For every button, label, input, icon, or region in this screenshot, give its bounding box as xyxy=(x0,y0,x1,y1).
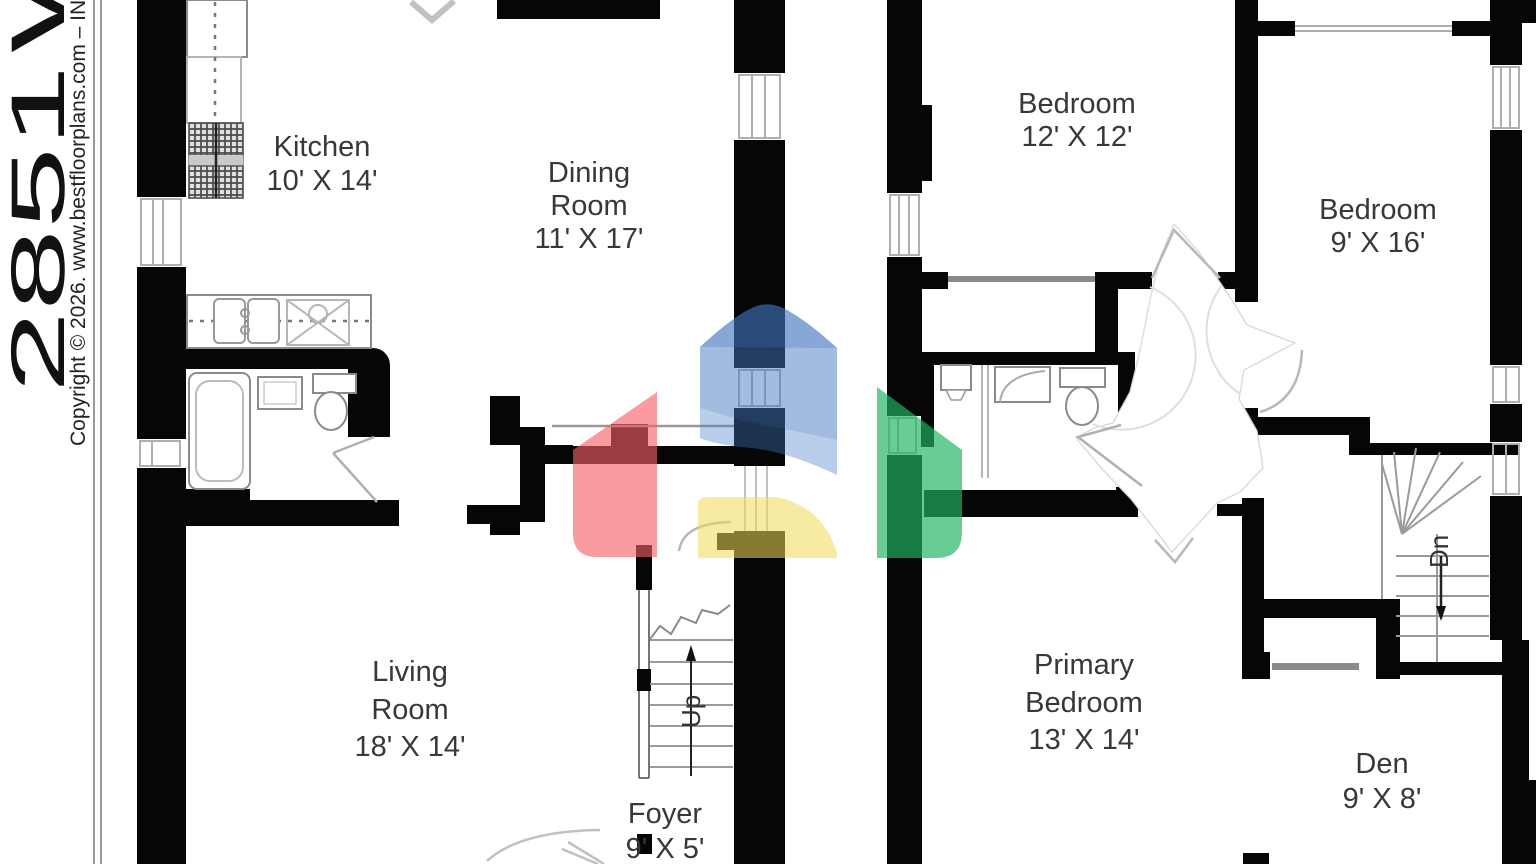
svg-text:12' X 12': 12' X 12' xyxy=(1021,121,1132,153)
svg-text:Foyer: Foyer xyxy=(628,798,702,830)
svg-text:9' X 8': 9' X 8' xyxy=(1343,783,1422,815)
svg-text:18' X 14': 18' X 14' xyxy=(354,731,465,763)
svg-text:10' X 14': 10' X 14' xyxy=(266,165,377,197)
svg-text:Dn: Dn xyxy=(1424,535,1454,568)
svg-text:9' X 5': 9' X 5' xyxy=(626,833,705,864)
svg-text:Up: Up xyxy=(676,695,706,728)
svg-text:Bedroom: Bedroom xyxy=(1025,687,1143,719)
svg-text:Den: Den xyxy=(1355,748,1408,780)
svg-text:Bedroom: Bedroom xyxy=(1319,194,1437,226)
svg-text:Bedroom: Bedroom xyxy=(1018,88,1136,120)
svg-text:Dining: Dining xyxy=(548,157,630,189)
svg-text:Room: Room xyxy=(550,190,627,222)
svg-text:Primary: Primary xyxy=(1034,649,1134,681)
svg-text:13' X 14': 13' X 14' xyxy=(1028,724,1139,756)
svg-text:11' X 17': 11' X 17' xyxy=(535,223,644,255)
svg-text:Copyright © 2026. www.bestflo: Copyright © 2026. www.bestfloorplans.com… xyxy=(67,0,90,446)
svg-text:9' X 16': 9' X 16' xyxy=(1331,227,1426,259)
svg-text:Living: Living xyxy=(372,656,448,688)
svg-text:Room: Room xyxy=(371,694,448,726)
svg-text:Kitchen: Kitchen xyxy=(274,131,371,163)
